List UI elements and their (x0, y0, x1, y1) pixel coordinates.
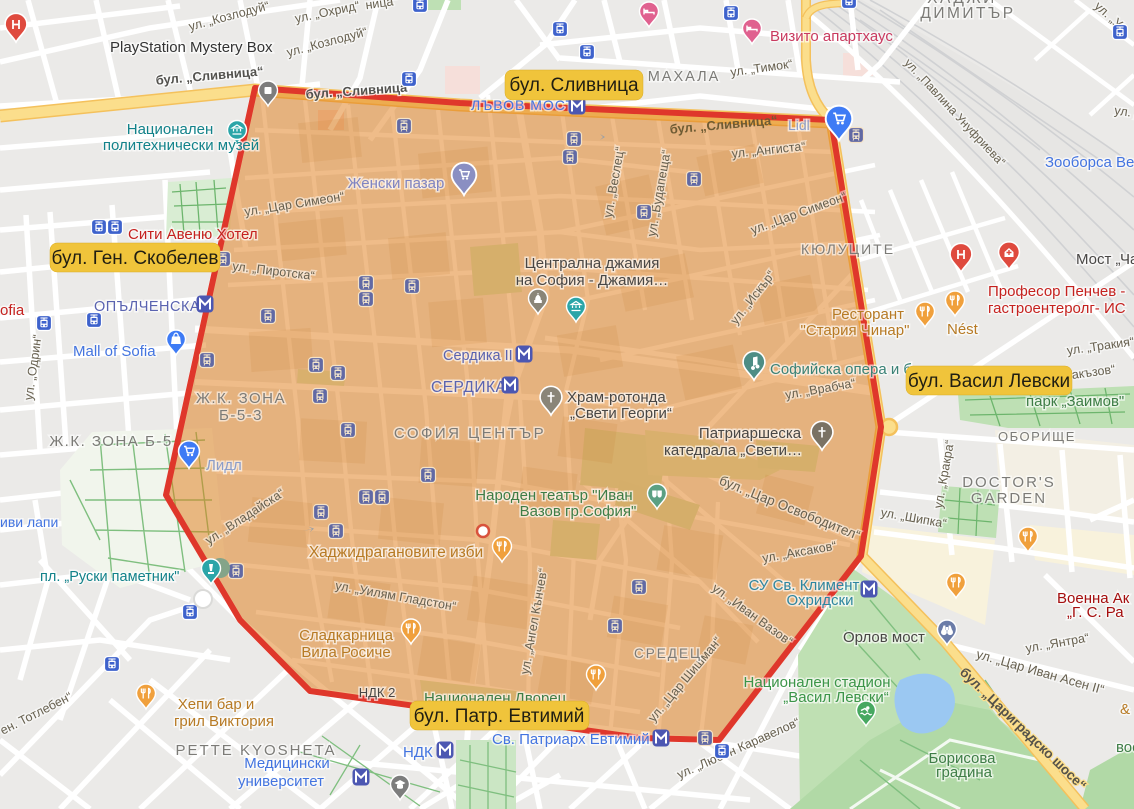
svg-text:Медицински: Медицински (244, 755, 330, 772)
svg-text:СЕРДИКА: СЕРДИКА (431, 379, 507, 396)
svg-text:парк „Заимов": парк „Заимов" (1026, 393, 1124, 410)
svg-text:вое: вое (1116, 739, 1134, 756)
svg-text:Nést: Nést (947, 321, 979, 338)
svg-text:КЮЛУЦИТЕ: КЮЛУЦИТЕ (801, 241, 895, 257)
svg-text:Охридски: Охридски (787, 592, 854, 609)
svg-text:пл. „Руски паметник": пл. „Руски паметник" (40, 569, 179, 585)
svg-text:Централна джамия: Централна джамия (525, 255, 660, 272)
svg-text:бул. Васил Левски: бул. Васил Левски (908, 371, 1070, 392)
svg-text:DOCTOR'S: DOCTOR'S (962, 474, 1056, 491)
svg-text:НДК 2: НДК 2 (359, 685, 396, 700)
svg-text:Сладкарница: Сладкарница (299, 627, 394, 644)
svg-text:Ресторант: Ресторант (832, 306, 904, 323)
svg-text:бул. Патр. Евтимий: бул. Патр. Евтимий (414, 706, 585, 727)
svg-text:бул. Ген. Скобелев: бул. Ген. Скобелев (52, 248, 219, 269)
svg-text:Lidl: Lidl (788, 117, 810, 133)
svg-text:на София - Джамия…: на София - Джамия… (516, 272, 669, 289)
svg-text:ОПЪЛЧЕНСКА: ОПЪЛЧЕНСКА (94, 299, 200, 315)
svg-text:Мост „Ча: Мост „Ча (1076, 251, 1134, 268)
svg-text:Патриаршеска: Патриаршеска (699, 425, 802, 442)
svg-text:Вила Росиче: Вила Росиче (301, 644, 390, 661)
svg-text:Св. Патриарх Евтимий: Св. Патриарх Евтимий (492, 731, 650, 748)
svg-text:СРЕДЕЦ: СРЕДЕЦ (634, 646, 702, 661)
svg-text:Mall of Sofia: Mall of Sofia (73, 343, 156, 360)
svg-text:катедрала „Свети…: катедрала „Свети… (664, 442, 802, 459)
svg-text:Народен театър "Иван: Народен театър "Иван (475, 487, 632, 504)
svg-text:ОБОРИЩЕ: ОБОРИЩЕ (998, 429, 1076, 444)
svg-text:PlayStation Mystery Box: PlayStation Mystery Box (110, 39, 273, 56)
svg-text:Храм-ротонда: Храм-ротонда (567, 389, 666, 406)
svg-text:Зооборса Ве: Зооборса Ве (1045, 154, 1134, 171)
svg-text:GARDEN: GARDEN (971, 490, 1047, 507)
svg-text:Женски пазар: Женски пазар (348, 175, 445, 192)
svg-text:Орлов мост: Орлов мост (843, 629, 925, 646)
svg-text:Хепи бар и: Хепи бар и (178, 696, 255, 713)
svg-text:"Стария Чинар": "Стария Чинар" (801, 322, 910, 339)
svg-text:&: & (1120, 701, 1130, 718)
svg-text:„Свети Георги“: „Свети Георги“ (570, 405, 672, 422)
svg-text:грил Виктория: грил Виктория (174, 713, 274, 730)
svg-text:Сердика II: Сердика II (443, 348, 513, 364)
svg-text:НДК: НДК (403, 744, 433, 761)
svg-text:университет: университет (238, 773, 324, 790)
svg-text:бул. Сливница: бул. Сливница (509, 75, 639, 96)
svg-text:СОФИЯ ЦЕНТЪР: СОФИЯ ЦЕНТЪР (394, 425, 546, 442)
svg-text:ДИМИТЪР: ДИМИТЪР (920, 5, 1015, 22)
svg-text:Софийска опера и б: Софийска опера и б (770, 361, 912, 378)
svg-text:Б-5-3: Б-5-3 (219, 407, 263, 424)
svg-text:Вазов гр.София": Вазов гр.София" (520, 503, 637, 520)
svg-text:Сити Авеню Хотел: Сити Авеню Хотел (128, 226, 258, 243)
svg-text:„Г. С. Ра: „Г. С. Ра (1067, 604, 1124, 621)
svg-text:гастроентеролг- ИС: гастроентеролг- ИС (988, 300, 1126, 317)
svg-text:Национален: Национален (127, 121, 214, 138)
svg-text:Лидл: Лидл (206, 457, 242, 474)
svg-text:Професор Пенчев -: Професор Пенчев - (988, 283, 1125, 300)
svg-text:МАХАЛА: МАХАЛА (648, 69, 721, 85)
svg-text:Ж.К. ЗОНА: Ж.К. ЗОНА (196, 390, 286, 407)
svg-text:ХАДЖИ: ХАДЖИ (927, 0, 997, 7)
svg-text:Ж.К. ЗОНА Б-5: Ж.К. ЗОНА Б-5 (49, 433, 172, 450)
svg-text:Визито апартхаус: Визито апартхаус (770, 28, 893, 45)
svg-text:градина: градина (936, 764, 993, 781)
svg-text:иви лапи: иви лапи (0, 514, 58, 530)
svg-text:Хаджидрагановите изби: Хаджидрагановите изби (309, 544, 483, 561)
svg-text:ofia: ofia (0, 302, 25, 319)
